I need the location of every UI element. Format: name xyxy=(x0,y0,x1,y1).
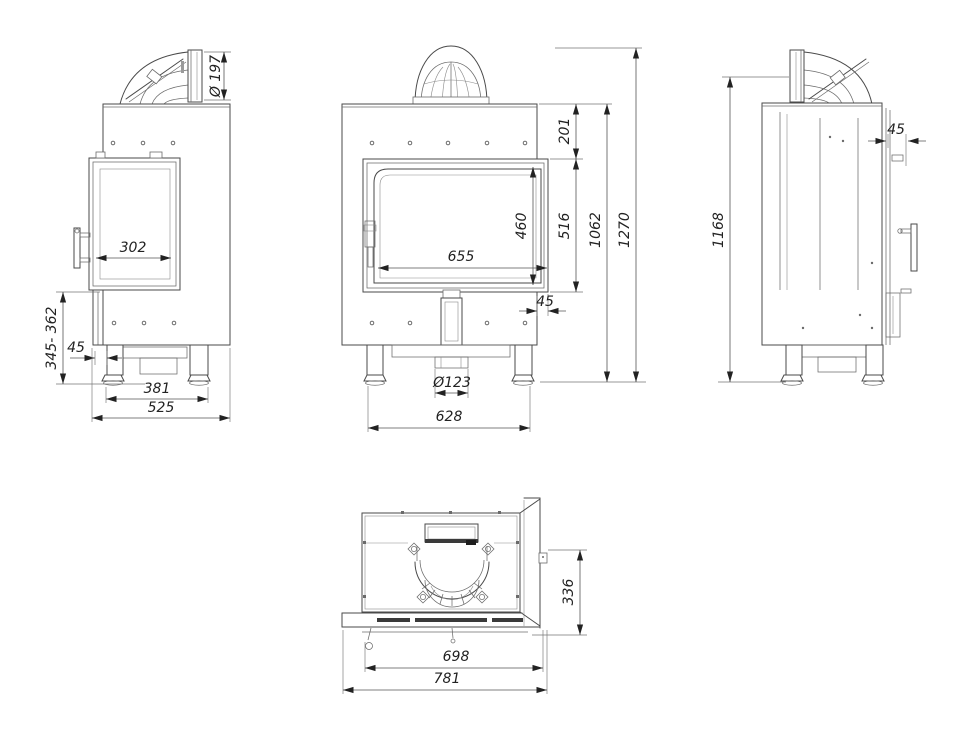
left-side-view: Ø 197 302 345- 362 45 381 525 xyxy=(44,50,231,422)
inner-width-label: 698 xyxy=(443,649,470,665)
adjustable-foot-icon xyxy=(781,375,803,385)
adjustable-foot-icon xyxy=(862,375,884,385)
door-handle-icon xyxy=(898,224,917,293)
flue-elbow-icon xyxy=(790,50,872,104)
top-section-label: 201 xyxy=(557,118,573,145)
front-view: 201 516 460 655 1062 1270 45 Ø123 xyxy=(342,46,646,432)
chimney-dome-icon xyxy=(413,46,489,104)
total-depth-label: 525 xyxy=(148,400,175,416)
flange-depth-label: 45 xyxy=(887,122,905,138)
dim-air-inlet: Ø123 xyxy=(432,369,471,398)
latch-hook-icon xyxy=(366,628,456,650)
flue-diameter-label: Ø 197 xyxy=(208,55,224,98)
adjustable-foot-icon xyxy=(364,375,386,385)
adjustable-foot-icon xyxy=(512,375,534,385)
glass-height-label: 460 xyxy=(514,213,530,240)
pipe-part-label xyxy=(181,61,184,73)
door-height-label: 516 xyxy=(557,213,573,240)
door-side xyxy=(89,152,180,290)
height-range-label: 345- 362 xyxy=(44,306,60,369)
dim-top-section: 201 xyxy=(539,104,612,159)
door-offset-label: 45 xyxy=(536,294,554,310)
fireplace-technical-drawing: Ø 197 302 345- 362 45 381 525 xyxy=(0,0,970,750)
feet-spacing-label: 381 xyxy=(144,381,171,397)
base-and-legs xyxy=(102,345,210,385)
adjustable-foot-icon xyxy=(102,375,124,385)
top-view: 336 698 781 xyxy=(342,498,587,694)
right-side-view: 1168 45 xyxy=(711,50,926,385)
air-inlet-label: Ø123 xyxy=(432,375,471,391)
body-height-label: 1062 xyxy=(588,212,604,248)
adjustable-foot-icon xyxy=(188,375,210,385)
glass-width-label: 655 xyxy=(448,249,475,265)
flue-elbow-icon xyxy=(120,50,202,104)
glass-depth-label: 302 xyxy=(120,240,147,256)
dim-door-height: 516 xyxy=(550,159,583,292)
front-offset-label: 45 xyxy=(67,340,85,356)
dim-inner-width: 698 xyxy=(365,630,543,672)
total-width-label: 781 xyxy=(434,671,461,687)
drawing-canvas: Ø 197 302 345- 362 45 381 525 xyxy=(0,0,970,750)
flue-axis-height-label: 1168 xyxy=(711,212,727,248)
top-plate xyxy=(342,498,547,632)
firebox-body-back xyxy=(762,103,903,345)
feet-span-label: 628 xyxy=(436,409,463,425)
door-handle-icon xyxy=(74,228,90,268)
dim-flue-diameter: Ø 197 xyxy=(204,52,231,100)
total-height-label: 1270 xyxy=(617,212,633,248)
base-and-legs xyxy=(762,345,884,385)
plate-depth-label: 336 xyxy=(561,579,577,606)
